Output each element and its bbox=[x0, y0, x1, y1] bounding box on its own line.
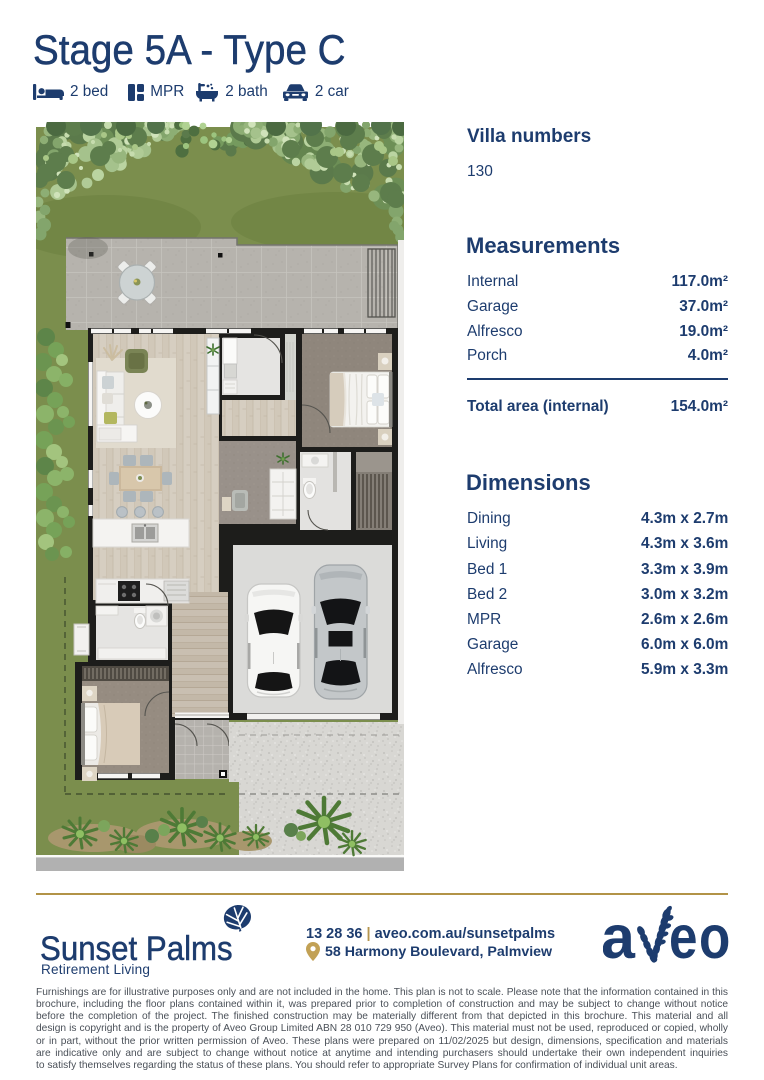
svg-text:a: a bbox=[603, 903, 636, 963]
svg-text:o: o bbox=[699, 903, 730, 963]
svg-text:e: e bbox=[669, 903, 697, 963]
